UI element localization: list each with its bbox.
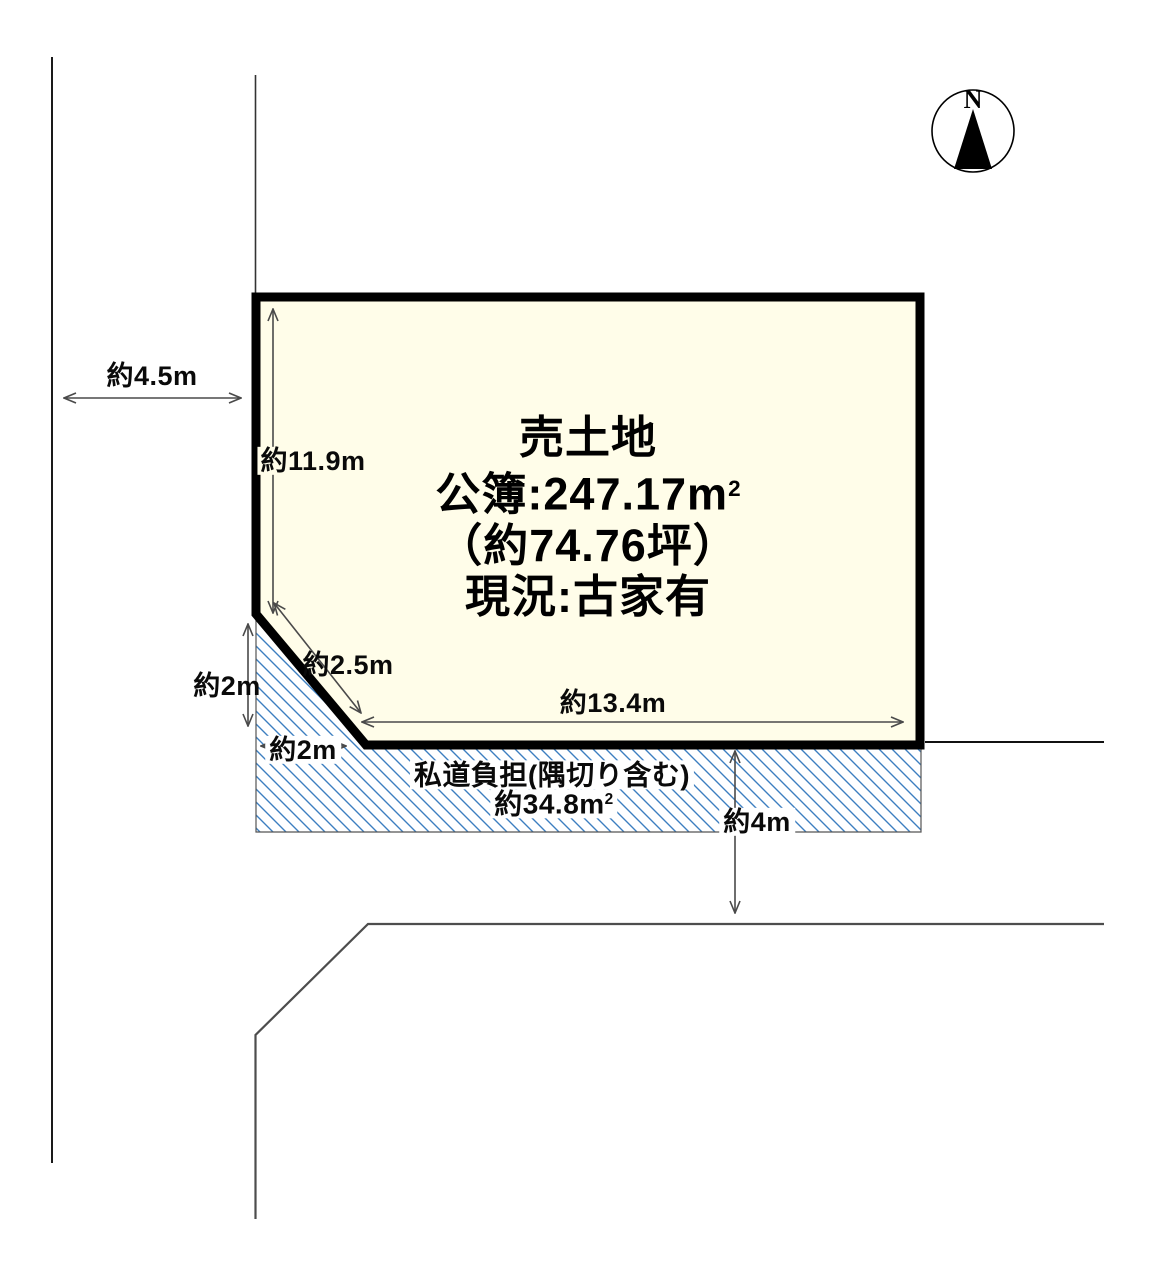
private-road-area-label: 約34.8m2 [490,789,617,818]
compass-north-label: N [964,85,983,114]
north-compass: N [932,85,1014,172]
dim-label-corner-cut: 約2.5m [302,651,393,679]
plot-title: 売土地 [435,412,740,463]
dim-label-west-boundary: 約11.9m [257,447,368,475]
dim-label-corner-horizontal: 約2m [265,736,341,764]
land-plot-drawing: N 約4.5m 約11.9m 約2.5m 約2m 約2m 約13.4m 約4m … [0,0,1157,1278]
plot-info-block: 売土地 公簿:247.17m2 （約74.76坪） 現況:古家有 [435,412,740,622]
dim-label-corner-vertical: 約2m [193,672,261,700]
plot-registered-area-sup: 2 [728,476,741,501]
south-road-south-edge-line [256,924,1105,1219]
plot-registered-area: 公簿:247.17m2 [435,463,740,520]
dim-label-west-road-width: 約4.5m [106,362,197,390]
dim-label-south-boundary: 約13.4m [557,689,670,717]
plan-drawing-svg: N [0,0,1157,1278]
plot-current-status: 現況:古家有 [435,571,740,622]
dim-label-south-road-width: 約4m [719,808,795,836]
private-road-area-sup: 2 [605,791,614,808]
private-road-area-value: 約34.8m [494,788,604,819]
private-road-burden-label: 私道負担(隅切り含む) [410,760,694,789]
plot-tsubo-area: （約74.76坪） [435,520,740,571]
plot-registered-area-value: 公簿:247.17m [435,469,728,520]
